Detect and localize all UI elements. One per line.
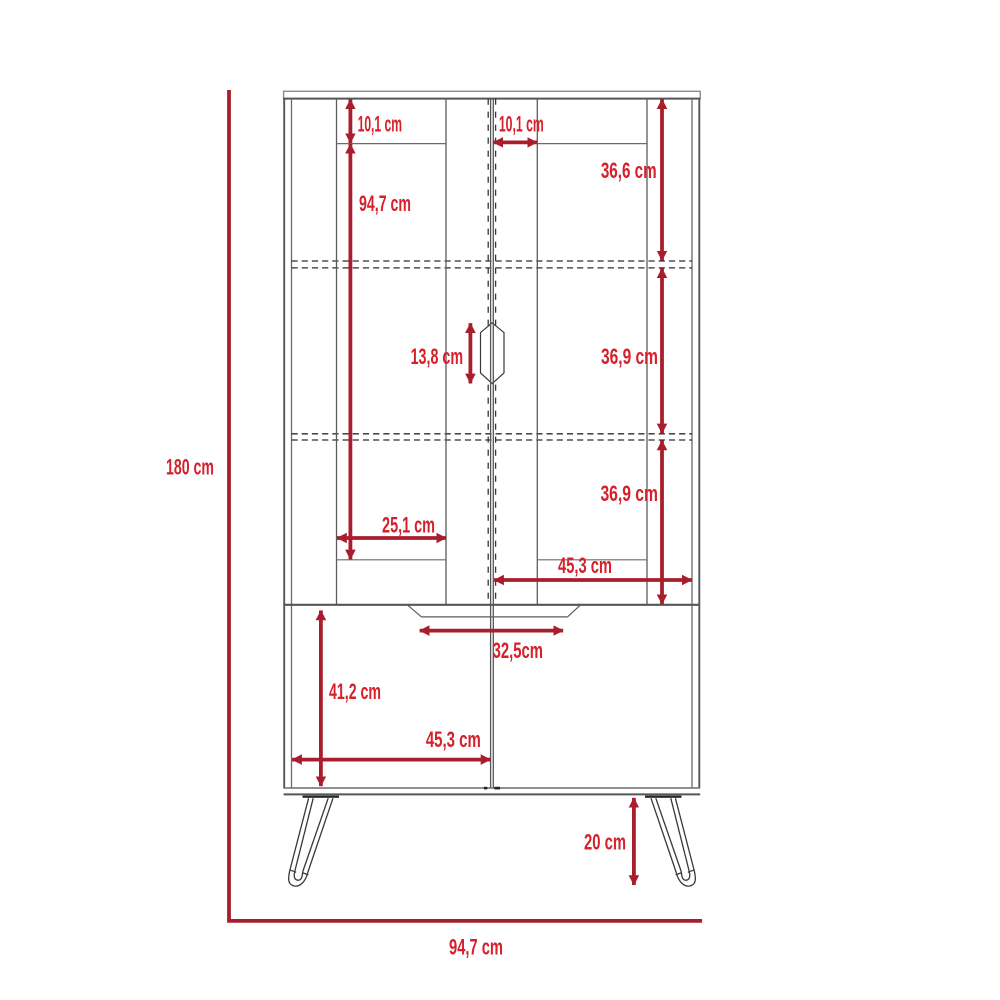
- svg-text:10,1 cm: 10,1 cm: [358, 112, 402, 137]
- svg-text:94,7 cm: 94,7 cm: [449, 935, 503, 960]
- svg-text:45,3 cm: 45,3 cm: [558, 553, 612, 578]
- svg-text:10,1 cm: 10,1 cm: [499, 112, 544, 137]
- svg-text:180 cm: 180 cm: [166, 454, 214, 479]
- svg-text:20 cm: 20 cm: [584, 829, 626, 854]
- svg-text:45,3 cm: 45,3 cm: [426, 727, 481, 752]
- svg-text:13,8 cm: 13,8 cm: [411, 344, 463, 369]
- svg-text:32,5cm: 32,5cm: [493, 638, 543, 663]
- svg-text:36,9 cm: 36,9 cm: [600, 482, 658, 506]
- svg-text:25,1 cm: 25,1 cm: [382, 512, 435, 537]
- svg-text:41,2 cm: 41,2 cm: [329, 679, 381, 704]
- svg-text:36,6 cm: 36,6 cm: [601, 159, 657, 183]
- svg-text:94,7 cm: 94,7 cm: [359, 191, 411, 216]
- svg-text:36,9 cm: 36,9 cm: [601, 346, 658, 370]
